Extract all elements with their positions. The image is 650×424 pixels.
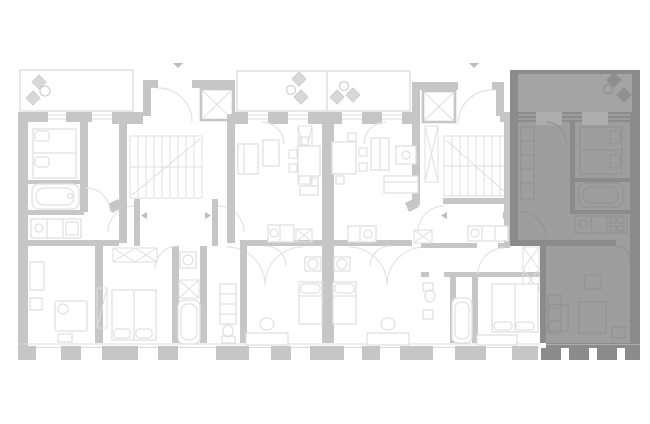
desk — [477, 335, 517, 345]
staircase-1 — [130, 136, 202, 198]
kitchen-counter — [268, 225, 294, 242]
chair — [381, 318, 395, 330]
elevator-2 — [423, 91, 455, 122]
entrance-arrow-icon — [173, 63, 183, 68]
apartment-center-right[interactable] — [332, 122, 418, 345]
balcony-center-right — [327, 71, 410, 111]
balcony-center-left — [237, 71, 327, 111]
landing-arrow-icon — [141, 212, 147, 219]
toilet — [223, 325, 233, 337]
bathroom — [178, 252, 200, 344]
dining-table — [332, 142, 356, 174]
kitchen-counter — [468, 226, 508, 241]
toilet — [425, 290, 435, 302]
desk — [367, 333, 409, 345]
selected-bottom-piers — [541, 348, 640, 360]
bottom-window-piers — [18, 346, 538, 360]
staircase-2 — [444, 136, 506, 196]
landing-arrow-icon — [441, 212, 447, 219]
apartment-center-left[interactable] — [238, 122, 322, 345]
entrance-arrow-icon — [469, 63, 479, 68]
wardrobe — [113, 248, 157, 262]
bed — [333, 282, 356, 324]
side-table — [396, 146, 416, 164]
cabinet — [263, 140, 279, 166]
floor-plan-canvas — [0, 0, 650, 424]
floor-plan — [0, 0, 650, 424]
sofa — [238, 144, 258, 174]
cabinet — [30, 262, 44, 290]
bed — [299, 282, 322, 324]
balcony-left — [20, 70, 133, 111]
dining-table — [298, 146, 320, 176]
chair — [260, 318, 274, 330]
sink — [423, 310, 433, 319]
wc-room — [220, 284, 236, 343]
sofa — [384, 176, 418, 193]
desk — [246, 333, 288, 345]
landing-arrow-icon — [205, 212, 211, 219]
